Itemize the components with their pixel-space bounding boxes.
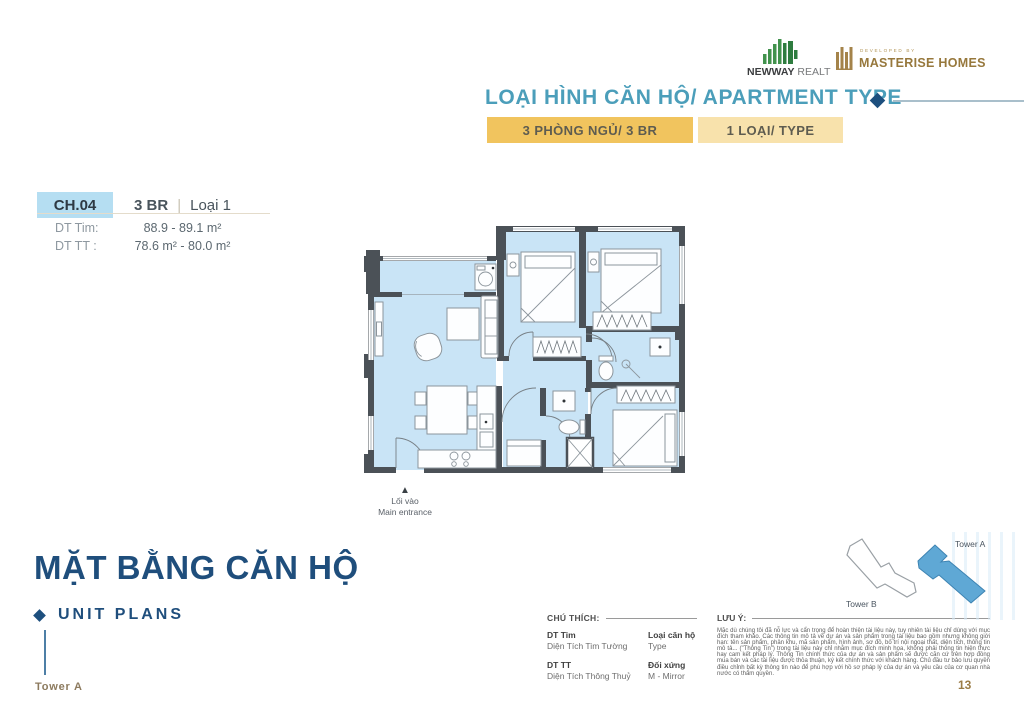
legend-desc: Diện Tích Thông Thuỷ	[547, 672, 648, 681]
floor-plan	[363, 226, 698, 486]
unit-variant: Loại 1	[190, 197, 231, 214]
page-number: 13	[958, 678, 971, 692]
tower-b-shape	[847, 539, 916, 597]
tower-a-footer-label: Tower A	[35, 681, 83, 693]
corridor-closet-icon	[507, 440, 541, 466]
legend-item: Loại căn hộ Type	[648, 631, 708, 651]
note-body: Mặc dù chúng tôi đã nỗ lực và cẩn trọng …	[717, 628, 990, 677]
section-subtitle-row: UNIT PLANS	[35, 606, 184, 624]
tower-a-shape[interactable]	[918, 545, 985, 603]
dt-tim-value: 88.9 - 89.1 m²	[125, 221, 240, 235]
section-rule	[44, 630, 46, 675]
title-rule	[893, 100, 1024, 102]
newway-logo-icon	[763, 39, 798, 64]
legend-title: CHÚ THÍCH:	[547, 613, 600, 623]
legend-term: DT TT	[547, 661, 648, 670]
legend-term: Đối xứng	[648, 661, 708, 670]
newway-realty-logo: NEWWAY REALTY	[735, 36, 831, 78]
note-title: LƯU Ý:	[717, 613, 746, 623]
unit-type-label: 3 BR | Loại 1	[125, 192, 240, 218]
legend-desc: M - Mirror	[648, 672, 708, 681]
entrance-label-en: Main entrance	[355, 507, 455, 518]
unit-bedrooms: 3 BR	[134, 197, 168, 214]
subtitle-diamond-icon	[33, 609, 46, 622]
masterise-homes-logo: DEVELOPED BY MASTERISE HOMES	[836, 44, 994, 74]
unit-code-chip[interactable]: CH.04	[37, 192, 113, 218]
entrance-label: ▲ Lối vào Main entrance	[355, 486, 455, 518]
dt-tt-label: DT TT :	[55, 239, 97, 253]
shaft-icon	[567, 438, 593, 468]
bedroom3-furniture	[613, 386, 677, 466]
masterise-name-text: MASTERISE HOMES	[859, 56, 986, 70]
legend: CHÚ THÍCH: DT Tim Diện Tích Tim Tường Lo…	[547, 613, 697, 681]
newway-logo-text: NEWWAY REALTY	[747, 66, 831, 78]
masterise-logo-icon	[836, 47, 853, 70]
legend-item: Đối xứng M - Mirror	[648, 661, 708, 681]
dt-tim-label: DT Tim:	[55, 221, 99, 235]
section-title: MẶT BẰNG CĂN HỘ	[34, 549, 359, 587]
legend-term: DT Tim	[547, 631, 648, 640]
loggia-washer-icon	[475, 264, 496, 290]
developed-by-text: DEVELOPED BY	[860, 48, 916, 53]
legend-term: Loại căn hộ	[648, 631, 708, 640]
legend-rule	[606, 618, 697, 619]
minimap-tower-b-label: Tower B	[846, 599, 877, 609]
tower-minimap: Tower A Tower B	[822, 528, 1022, 620]
entrance-arrow-icon: ▲	[355, 486, 455, 496]
unit-card-divider	[37, 213, 270, 214]
tab-type-count[interactable]: 1 LOẠI/ TYPE	[698, 117, 843, 143]
legend-desc: Type	[648, 642, 708, 651]
dt-tt-value: 78.6 m² - 80.0 m²	[125, 239, 240, 253]
legend-desc: Diện Tích Tim Tường	[547, 642, 648, 651]
legend-item: DT Tim Diện Tích Tim Tường	[547, 631, 648, 651]
page-title: LOẠI HÌNH CĂN HỘ/ APARTMENT TYPE	[485, 86, 902, 110]
entrance-label-vi: Lối vào	[355, 496, 455, 507]
tab-3br[interactable]: 3 PHÒNG NGỦ/ 3 BR	[487, 117, 693, 143]
brochure-page: NEWWAY REALTY DEVELOPED BY MASTERISE HOM…	[0, 0, 1024, 706]
minimap-tower-a-label: Tower A	[955, 539, 986, 549]
disclaimer-note: LƯU Ý: Mặc dù chúng tôi đã nỗ lực và cẩn…	[717, 613, 990, 677]
legend-item: DT TT Diện Tích Thông Thuỷ	[547, 661, 648, 681]
unit-type-separator: |	[177, 197, 181, 214]
section-subtitle: UNIT PLANS	[58, 606, 184, 624]
